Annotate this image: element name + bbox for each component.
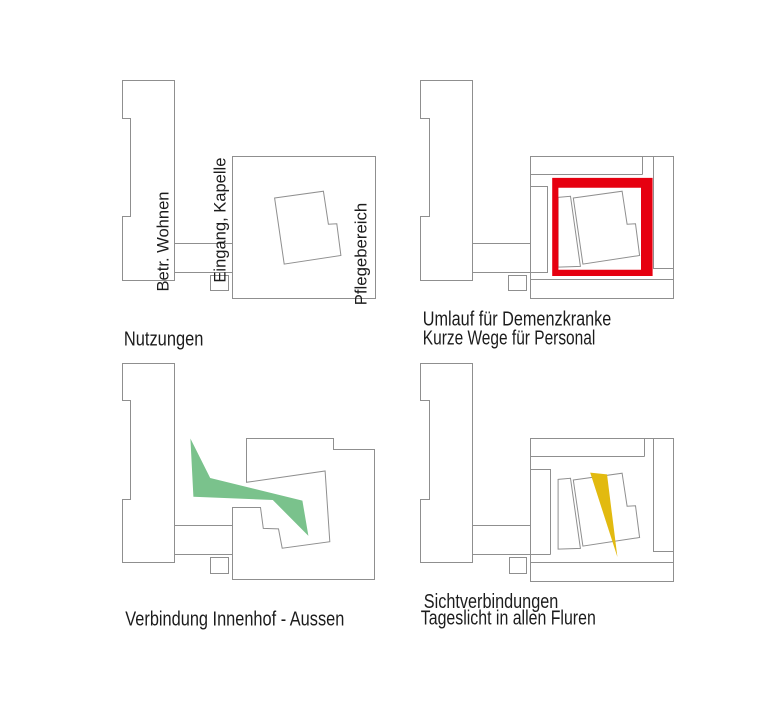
svg-text:Betr. Wohnen: Betr. Wohnen bbox=[153, 192, 172, 292]
svg-text:Verbindung Innenhof - Aussen: Verbindung Innenhof - Aussen bbox=[125, 608, 344, 630]
svg-text:Kurze Wege für Personal: Kurze Wege für Personal bbox=[423, 328, 596, 350]
svg-text:Pflegebereich: Pflegebereich bbox=[352, 203, 371, 306]
svg-text:Eingang, Kapelle: Eingang, Kapelle bbox=[211, 158, 230, 283]
svg-text:Tageslicht in allen Fluren: Tageslicht in allen Fluren bbox=[421, 608, 596, 630]
svg-text:Nutzungen: Nutzungen bbox=[124, 328, 203, 350]
